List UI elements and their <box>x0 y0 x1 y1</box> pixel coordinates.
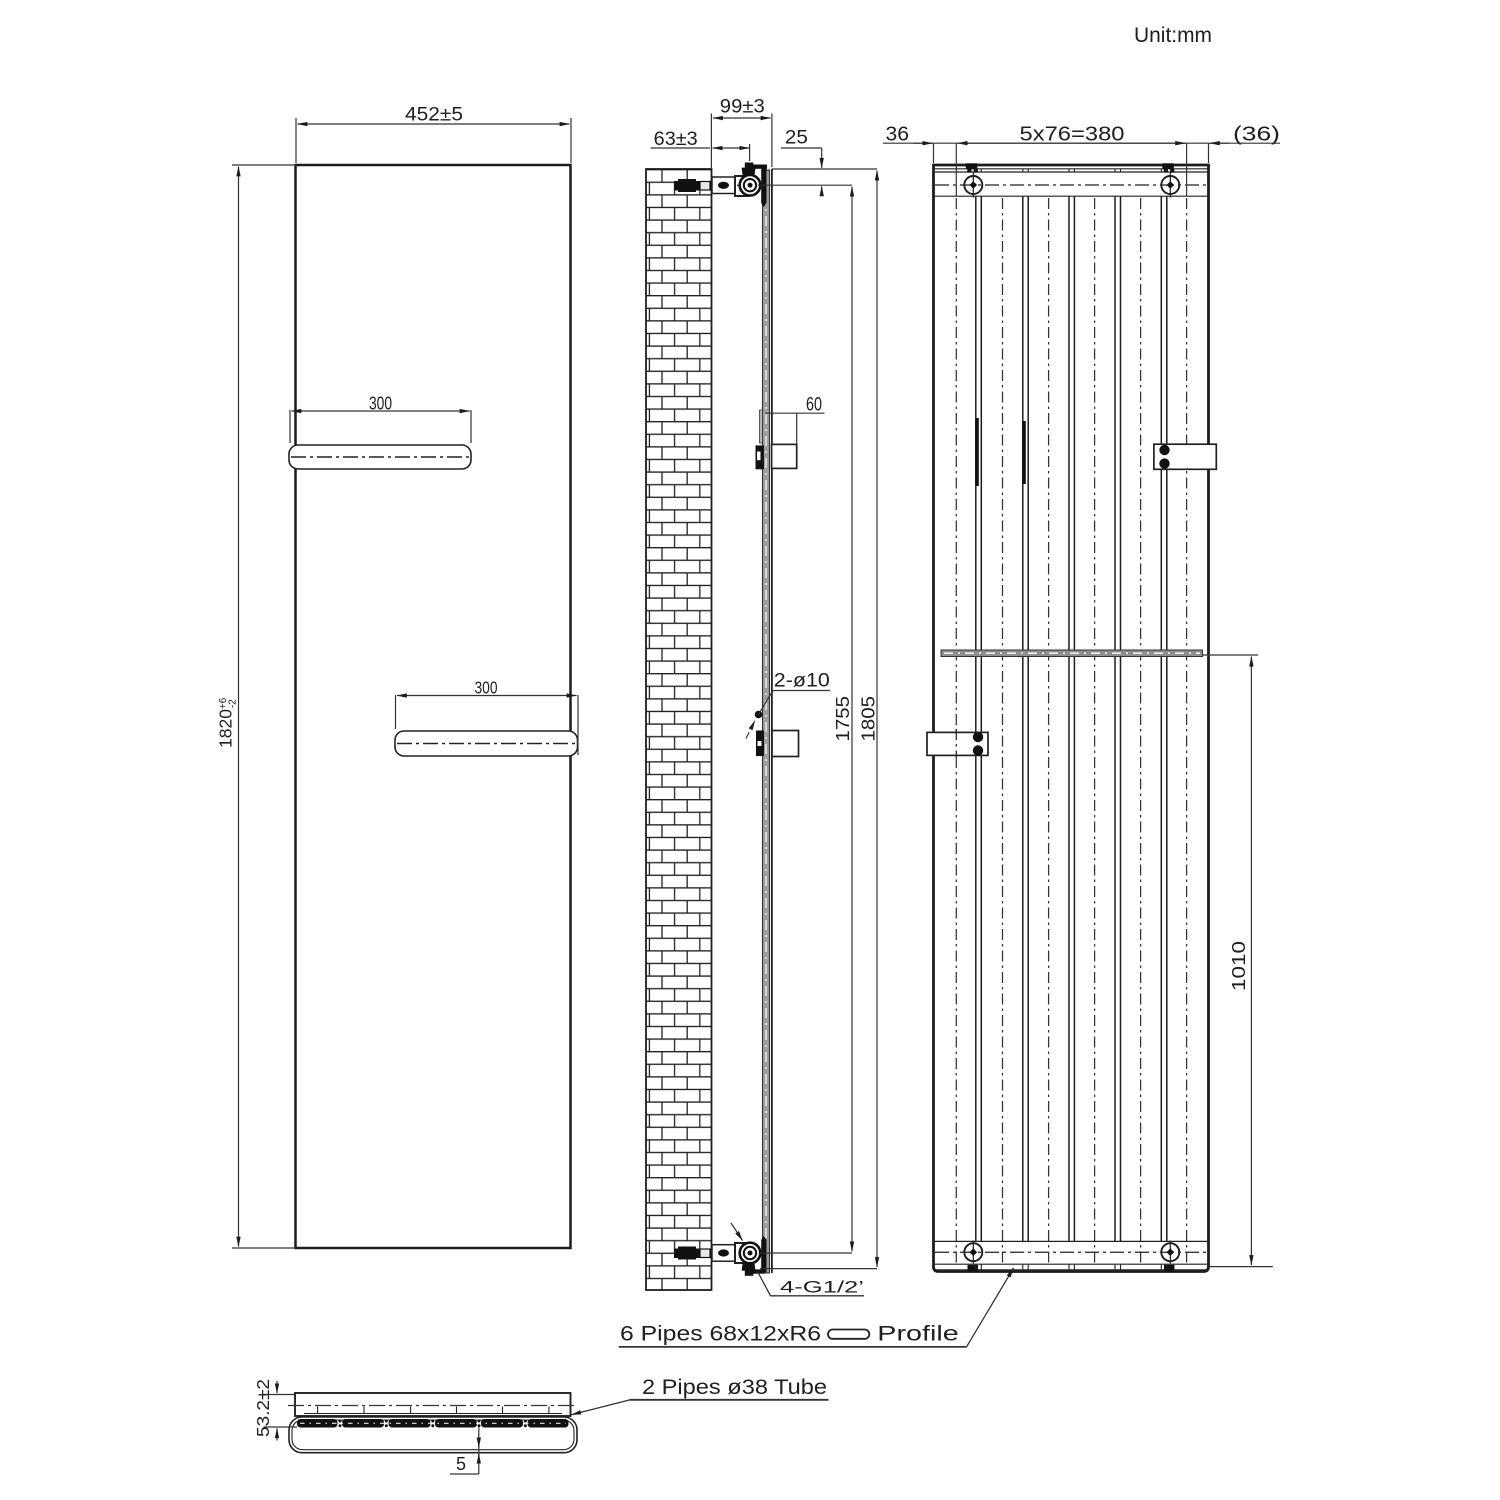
svg-text:53.2±2: 53.2±2 <box>253 1379 273 1437</box>
svg-text:5: 5 <box>456 1454 466 1474</box>
svg-text:1755: 1755 <box>832 696 853 742</box>
svg-text:6 Pipes 68x12xR6: 6 Pipes 68x12xR6 <box>620 1322 821 1346</box>
svg-text:1805: 1805 <box>858 696 879 742</box>
svg-text:1820+6-2: 1820+6-2 <box>216 697 239 748</box>
svg-text:63±3: 63±3 <box>654 129 698 150</box>
svg-text:60: 60 <box>806 395 822 416</box>
svg-text:4-G1/2’: 4-G1/2’ <box>780 1279 864 1297</box>
svg-text:99±3: 99±3 <box>720 97 765 118</box>
svg-text:2-ø10: 2-ø10 <box>774 671 830 692</box>
svg-text:1010: 1010 <box>1228 941 1249 991</box>
svg-text:Unit:mm: Unit:mm <box>1134 24 1212 47</box>
svg-text:Profile: Profile <box>877 1322 958 1346</box>
svg-text:25: 25 <box>785 128 808 149</box>
svg-text:5x76=380: 5x76=380 <box>1020 123 1125 145</box>
svg-text:(36): (36) <box>1233 123 1280 145</box>
svg-text:300: 300 <box>475 677 498 697</box>
svg-text:300: 300 <box>369 394 392 414</box>
svg-text:2 Pipes ø38 Tube: 2 Pipes ø38 Tube <box>642 1376 827 1399</box>
svg-text:452±5: 452±5 <box>405 104 463 126</box>
svg-text:36: 36 <box>886 123 910 145</box>
